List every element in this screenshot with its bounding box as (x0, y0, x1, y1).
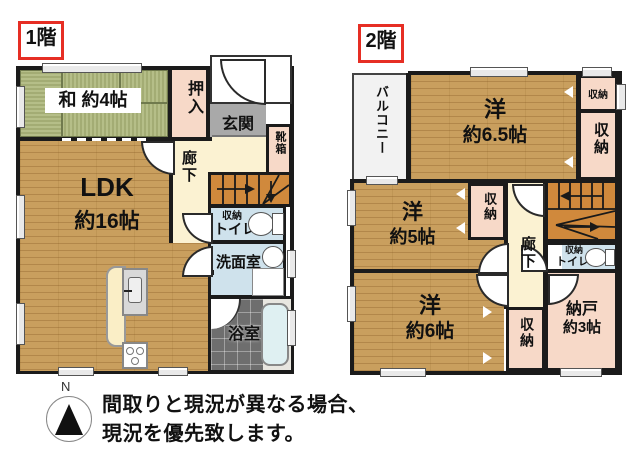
closet-mark-icon (483, 352, 492, 364)
window-icon (582, 67, 612, 77)
disclaimer-line1: 間取りと現況が異なる場合、 (102, 388, 369, 417)
oshiire-label: 押入 (181, 80, 205, 116)
washitsu-label: 和 約4帖 (45, 88, 141, 113)
floor2-badge: 2階 (358, 24, 404, 63)
balcony-label: バルコニー (372, 85, 391, 155)
window-icon (380, 368, 426, 377)
ldk-name-label: LDK (52, 172, 162, 203)
window-icon (42, 63, 142, 73)
closet-mark-icon (564, 156, 573, 168)
yokushitsu-label: 浴室 (228, 320, 260, 344)
window-icon (347, 286, 356, 322)
washbasin-icon (262, 246, 284, 268)
closet-mark-icon (564, 86, 573, 98)
wall (406, 73, 411, 181)
burner-icon (136, 347, 144, 355)
wall (168, 70, 172, 137)
toilet-2f-label: トイレ (556, 253, 589, 269)
window-icon (616, 84, 626, 110)
storage-bottom-label: 収納 (517, 317, 537, 349)
closet-mark-icon (483, 306, 492, 318)
rouka-1f-label: 廊下 (178, 150, 199, 184)
window-icon (470, 67, 528, 77)
storage-right-label: 収納 (590, 122, 611, 156)
window-icon (158, 367, 188, 376)
ldk-size-label: 約16帖 (52, 205, 162, 235)
yo65-size-label: 約6.5帖 (430, 120, 560, 147)
window-icon (287, 250, 296, 278)
stairs-2f-treads-icon (548, 183, 615, 239)
toilet-tank-icon (272, 213, 284, 235)
window-icon (16, 195, 25, 239)
window-icon (347, 190, 356, 226)
bathtub-icon (261, 303, 289, 366)
sliding-door-dashes (62, 138, 146, 141)
toilet-bowl-icon (585, 248, 607, 267)
storage-mid-label: 収納 (480, 192, 499, 222)
rouka-2f-label: 廊下 (517, 236, 538, 270)
window-icon (16, 86, 25, 128)
balcony-door-icon (366, 176, 398, 185)
storage-top-label: 収納 (580, 86, 616, 101)
stove-icon (122, 342, 148, 369)
wall (169, 170, 173, 243)
burner-icon (131, 357, 139, 365)
window-icon (16, 303, 25, 345)
corridor-1f-entry (210, 137, 266, 172)
window-icon (560, 368, 602, 377)
disclaimer-line2: 現況を優先致します。 (102, 417, 305, 446)
closet-mark-icon (456, 188, 465, 200)
faucet-icon (124, 290, 132, 292)
wall (618, 71, 622, 375)
toilet-tank-icon (605, 249, 615, 266)
genkan-label: 玄関 (212, 110, 264, 134)
compass-n-label: N (61, 379, 70, 394)
yo5-size-label: 約5帖 (365, 223, 460, 249)
yo6-size-label: 約6帖 (380, 316, 480, 343)
toilet-bowl-icon (248, 212, 274, 236)
washing-machine-icon (252, 268, 284, 296)
genkan-step-line (212, 135, 266, 137)
kitchen-sink-unit (122, 268, 148, 316)
floor-plan-canvas: 1階 LDK 約16帖 和 約4帖 押入 玄関 靴箱 廊下 (0, 0, 640, 452)
wall (206, 70, 210, 137)
window-icon (287, 310, 296, 346)
stairs-1f-treads-icon (211, 175, 289, 204)
kutsubako-label: 靴箱 (272, 131, 288, 155)
yo5-name-label: 洋 (365, 196, 460, 226)
window-icon (58, 367, 94, 376)
nando-size-label: 約3帖 (550, 316, 614, 337)
burner-icon (126, 347, 134, 355)
floor1-badge: 1階 (18, 21, 64, 60)
compass-north-arrow-icon (55, 404, 83, 435)
closet-mark-icon (456, 222, 465, 234)
